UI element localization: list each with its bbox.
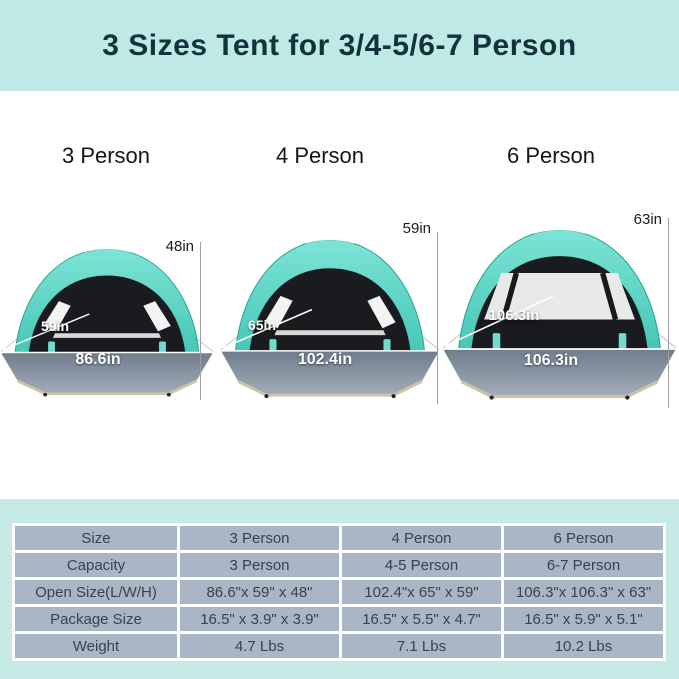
size-4person: 4 Person — [342, 526, 501, 550]
package-size-3person: 16.5" x 3.9" x 3.9" — [180, 607, 339, 631]
tent-1-title: 3 Person — [36, 143, 176, 169]
tent-3-height-line — [668, 218, 669, 408]
row-header-weight: Weight — [15, 634, 177, 658]
row-header-open-size: Open Size(L/W/H) — [15, 580, 177, 604]
tent-comparison-figure: 3 Person 4 Person 6 Person — [0, 91, 679, 499]
tent-3-height-label: 63in — [616, 211, 662, 228]
tent-2-width-label: 102.4in — [270, 351, 380, 369]
tent-1-height-label: 48in — [148, 238, 194, 255]
spec-table: Size 3 Person 4 Person 6 Person Capacity… — [12, 523, 666, 661]
page-title: 3 Sizes Tent for 3/4-5/6-7 Person — [102, 29, 576, 63]
capacity-4person: 4-5 Person — [342, 553, 501, 577]
tent-2-height-line — [437, 232, 438, 404]
weight-3person: 4.7 Lbs — [180, 634, 339, 658]
tent-1-height-line — [200, 242, 201, 400]
capacity-6person: 6-7 Person — [504, 553, 663, 577]
open-size-3person: 86.6"x 59" x 48" — [180, 580, 339, 604]
weight-4person: 7.1 Lbs — [342, 634, 501, 658]
tent-1-depth-label: 59in — [25, 318, 85, 334]
row-header-size: Size — [15, 526, 177, 550]
tent-3-title: 6 Person — [481, 143, 621, 169]
tent-3-width-label: 106.3in — [496, 352, 606, 370]
capacity-3person: 3 Person — [180, 553, 339, 577]
row-header-capacity: Capacity — [15, 553, 177, 577]
tent-2-depth-label: 65in — [232, 317, 292, 333]
row-header-package-size: Package Size — [15, 607, 177, 631]
header-banner: 3 Sizes Tent for 3/4-5/6-7 Person — [0, 0, 679, 91]
weight-6person: 10.2 Lbs — [504, 634, 663, 658]
open-size-6person: 106.3"x 106.3" x 63" — [504, 580, 663, 604]
package-size-4person: 16.5" x 5.5" x 4.7" — [342, 607, 501, 631]
open-size-4person: 102.4"x 65" x 59" — [342, 580, 501, 604]
tent-1-width-label: 86.6in — [48, 351, 148, 369]
package-size-6person: 16.5" x 5.9" x 5.1" — [504, 607, 663, 631]
size-3person: 3 Person — [180, 526, 339, 550]
tent-2-illustration — [219, 227, 441, 404]
tent-3-depth-label: 106.3in — [464, 307, 564, 324]
tent-2-title: 4 Person — [250, 143, 390, 169]
spec-table-section: Size 3 Person 4 Person 6 Person Capacity… — [0, 499, 679, 679]
tent-2-height-label: 59in — [385, 220, 431, 237]
size-6person: 6 Person — [504, 526, 663, 550]
